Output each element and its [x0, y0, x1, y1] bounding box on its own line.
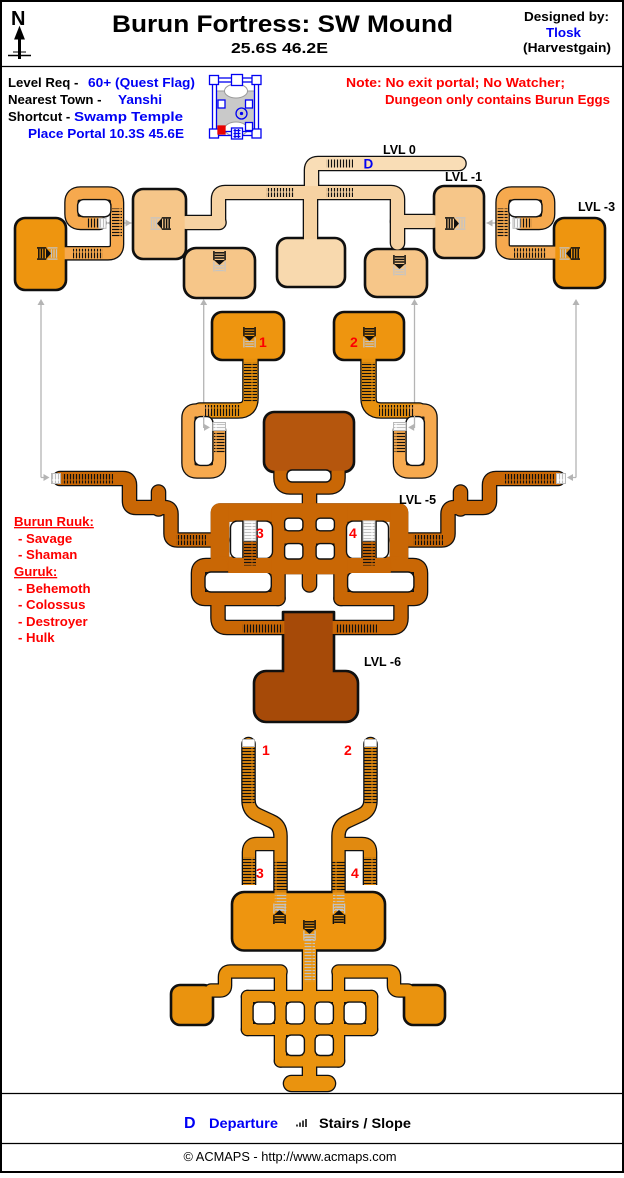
svg-text:Tlosk: Tlosk: [546, 25, 582, 40]
svg-text:- Savage: - Savage: [18, 531, 72, 546]
svg-text:4: 4: [349, 525, 357, 541]
svg-text:Departure: Departure: [209, 1116, 279, 1131]
svg-text:25.6S 46.2E: 25.6S 46.2E: [231, 40, 328, 57]
svg-text:Burun Fortress: SW Mound: Burun Fortress: SW Mound: [112, 11, 453, 38]
svg-text:Yanshi: Yanshi: [118, 92, 162, 107]
svg-text:1: 1: [259, 334, 267, 350]
svg-text:4: 4: [351, 865, 359, 881]
svg-text:- Colossus: - Colossus: [18, 597, 85, 612]
svg-text:Guruk:: Guruk:: [14, 564, 57, 579]
svg-text:Shortcut -: Shortcut -: [8, 109, 70, 124]
svg-text:© ACMAPS - http://www.acmaps.c: © ACMAPS - http://www.acmaps.com: [184, 1149, 397, 1164]
svg-text:D: D: [184, 1115, 196, 1132]
svg-text:Nearest Town -: Nearest Town -: [8, 92, 102, 107]
svg-text:Place Portal 10.3S 45.6E: Place Portal 10.3S 45.6E: [28, 126, 184, 141]
svg-text:LVL 0: LVL 0: [383, 143, 416, 157]
svg-text:Swamp Temple: Swamp Temple: [74, 109, 183, 124]
svg-text:3: 3: [256, 525, 264, 541]
svg-text:60+ (Quest Flag): 60+ (Quest Flag): [88, 75, 195, 90]
svg-text:3: 3: [256, 865, 264, 881]
svg-text:N: N: [11, 8, 25, 30]
svg-text:Stairs / Slope: Stairs / Slope: [319, 1116, 412, 1131]
svg-text:Burun Ruuk:: Burun Ruuk:: [14, 514, 94, 529]
svg-text:- Shaman: - Shaman: [18, 547, 77, 562]
svg-text:LVL -3: LVL -3: [578, 200, 615, 214]
svg-text:Dungeon only contains Burun Eg: Dungeon only contains Burun Eggs: [385, 92, 610, 107]
svg-text:2: 2: [344, 742, 352, 758]
svg-text:Level Req -: Level Req -: [8, 75, 78, 90]
svg-text:(Harvestgain): (Harvestgain): [523, 40, 611, 55]
svg-text:- Hulk: - Hulk: [18, 630, 55, 645]
svg-text:2: 2: [350, 334, 358, 350]
svg-text:LVL -1: LVL -1: [445, 170, 482, 184]
svg-text:1: 1: [262, 742, 270, 758]
svg-text:Designed by:: Designed by:: [524, 9, 609, 24]
svg-text:LVL -5: LVL -5: [399, 493, 436, 507]
svg-text:LVL -6: LVL -6: [364, 655, 401, 669]
svg-text:- Behemoth: - Behemoth: [18, 581, 91, 596]
svg-text:- Destroyer: - Destroyer: [18, 614, 88, 629]
svg-text:D: D: [364, 157, 374, 172]
svg-text:Note: No exit portal; No Watch: Note: No exit portal; No Watcher;: [346, 75, 565, 90]
